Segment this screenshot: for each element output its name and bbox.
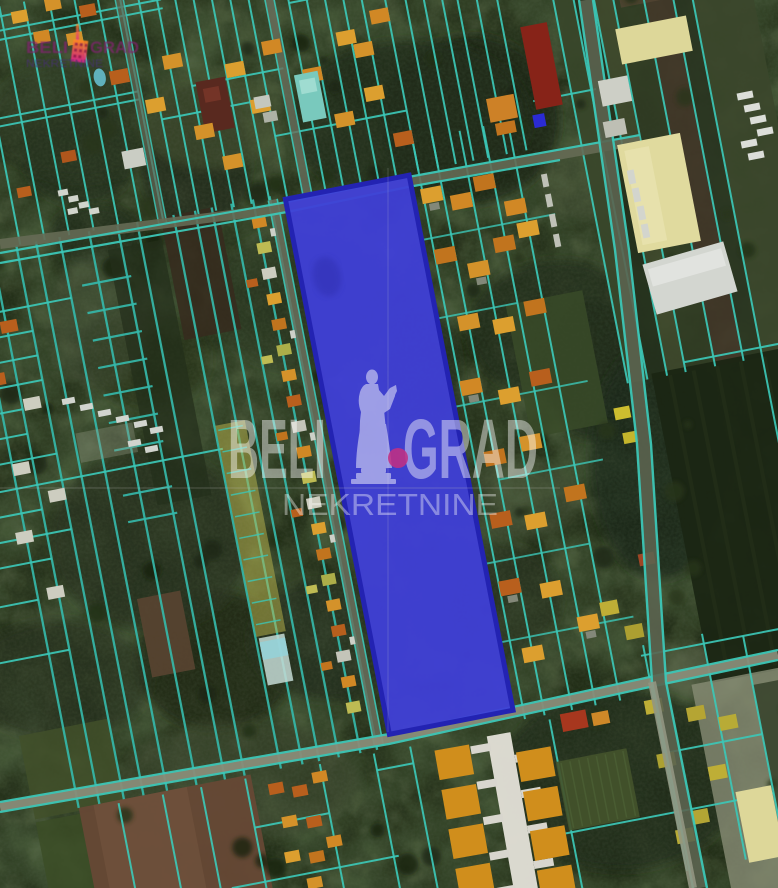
svg-text:NEKRETNINE: NEKRETNINE: [282, 487, 498, 522]
svg-text:GRAD: GRAD: [403, 402, 538, 496]
svg-text:BELI: BELI: [228, 402, 326, 496]
svg-text:NEKRETNINE: NEKRETNINE: [26, 58, 103, 70]
svg-text:BELI: BELI: [26, 39, 68, 57]
svg-text:GRAD: GRAD: [90, 39, 139, 57]
